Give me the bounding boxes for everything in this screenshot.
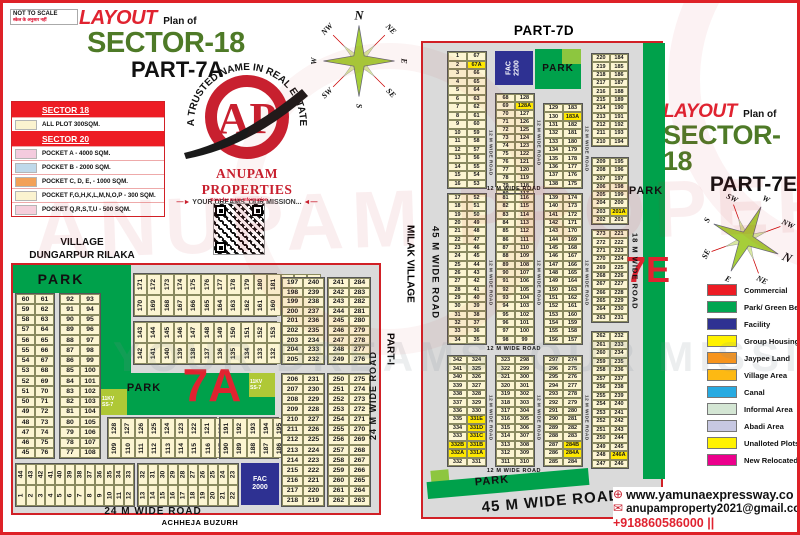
- block-263-273: 2732212722222712232702242692252682262672…: [591, 229, 629, 323]
- plot-200: 200: [610, 199, 628, 207]
- plot-91: 91: [496, 277, 515, 285]
- plot-122: 122: [188, 418, 201, 438]
- plot-128: 128: [515, 94, 534, 102]
- plot-29: 29: [168, 464, 178, 485]
- plot-209: 209: [282, 404, 303, 414]
- plot-26: 26: [448, 269, 467, 277]
- plot-335: 335: [448, 415, 467, 423]
- plot-121: 121: [201, 418, 214, 438]
- map-part-7a: 11KV SS-711KV SS-7FAC 200060615962586357…: [11, 263, 381, 515]
- plot-207: 207: [282, 384, 303, 394]
- plot-74: 74: [496, 142, 515, 150]
- plot-75: 75: [35, 438, 54, 448]
- plot-219: 219: [303, 496, 324, 506]
- plot-76: 76: [496, 158, 515, 166]
- plot-74: 74: [35, 427, 54, 437]
- plot-155: 155: [544, 327, 563, 335]
- legend-row: Park/ Green Belt: [707, 301, 800, 313]
- legend-swatch: [15, 163, 37, 173]
- plot-167: 167: [563, 252, 582, 260]
- legend-row: POCKET A - 4000 SQM.: [12, 146, 164, 160]
- plot-38: 38: [75, 464, 85, 485]
- plot-263: 263: [349, 496, 370, 506]
- plot-112: 112: [515, 227, 534, 235]
- compass-star-icon: [697, 190, 795, 288]
- map-label: 12 M WIDE ROAD: [581, 373, 591, 463]
- plot-89: 89: [60, 325, 80, 335]
- plot-153: 153: [267, 322, 280, 343]
- plot-109: 109: [108, 438, 121, 458]
- plot-110: 110: [121, 438, 134, 458]
- map-label: 12 M WIDE ROAD: [533, 103, 543, 183]
- plot-152: 152: [544, 302, 563, 310]
- plot-22: 22: [228, 485, 238, 506]
- website-url[interactable]: www.yamunaexpressway.co: [626, 488, 793, 502]
- plot-329: 329: [467, 398, 486, 406]
- plot-84: 84: [496, 219, 515, 227]
- plot-206: 206: [592, 183, 610, 191]
- plot-204: 204: [282, 345, 303, 355]
- plot-124: 124: [161, 418, 174, 438]
- plot-124: 124: [515, 134, 534, 142]
- plot-64: 64: [467, 86, 486, 95]
- plot-304: 304: [515, 407, 534, 415]
- plot-194: 194: [610, 138, 628, 146]
- plot-101: 101: [80, 376, 100, 386]
- plot-160: 160: [563, 311, 582, 319]
- plot-269: 269: [592, 263, 610, 271]
- plot-23: 23: [228, 464, 238, 485]
- plot-93: 93: [80, 294, 100, 304]
- plot-278: 278: [563, 390, 582, 398]
- plot-65: 65: [467, 78, 486, 87]
- legend-row: Canal: [707, 386, 800, 398]
- plot-56: 56: [467, 154, 486, 163]
- plot-4: 4: [448, 78, 467, 87]
- plot-66: 66: [467, 69, 486, 78]
- plot-188: 188: [610, 87, 628, 95]
- plot-94: 94: [80, 304, 100, 314]
- plot-328: 328: [467, 390, 486, 398]
- plot-235: 235: [610, 358, 628, 367]
- map-label: PARK: [25, 267, 97, 291]
- plot-14: 14: [148, 485, 158, 506]
- plot-125: 125: [148, 418, 161, 438]
- plot-52: 52: [16, 376, 35, 386]
- plot-285: 285: [544, 458, 563, 466]
- plot-197: 197: [610, 175, 628, 183]
- plot-14: 14: [448, 163, 467, 172]
- plot-181: 181: [267, 274, 280, 295]
- legend-swatch: [707, 386, 737, 398]
- email-line: ✉ anupamproperty2021@gmail.com: [613, 502, 800, 516]
- legend-label: POCKET C, D, E, - 1000 SQM.: [42, 178, 128, 185]
- plot-54: 54: [467, 171, 486, 180]
- plot-32: 32: [138, 464, 148, 485]
- plot-174: 174: [563, 194, 582, 202]
- plot-202: 202: [592, 216, 610, 224]
- plot-76: 76: [35, 448, 54, 458]
- plot-70: 70: [496, 110, 515, 118]
- strip-13-22: 3231302928272625242313141516171819202122: [137, 463, 239, 507]
- map-label: 12 M WIDE ROAD: [447, 467, 581, 475]
- plot-288: 288: [544, 432, 563, 440]
- plot-78: 78: [60, 438, 80, 448]
- plot-332A: 332A: [448, 449, 467, 457]
- plot-114: 114: [175, 438, 188, 458]
- legend-label: Abadi Area: [744, 422, 784, 431]
- plot-92: 92: [496, 286, 515, 294]
- plot-116: 116: [515, 194, 534, 202]
- plot-191: 191: [220, 418, 233, 438]
- plot-217: 217: [592, 79, 610, 87]
- block-77-108: 9293919490958996889787988699851008410183…: [59, 293, 101, 459]
- plot-156: 156: [544, 336, 563, 344]
- compass-label-N: N: [780, 249, 795, 266]
- plot-23: 23: [448, 244, 467, 252]
- plot-258: 258: [328, 455, 349, 465]
- plot-97: 97: [496, 327, 515, 335]
- plot-205: 205: [282, 354, 303, 364]
- plot-218: 218: [592, 71, 610, 79]
- plot-142: 142: [134, 343, 147, 364]
- plot-337: 337: [448, 398, 467, 406]
- plot-2: 2: [26, 485, 36, 506]
- plot-147: 147: [544, 261, 563, 269]
- block-332-342: 3423243413253403263393273383283373293363…: [447, 355, 487, 467]
- plot-101: 101: [515, 319, 534, 327]
- plot-18: 18: [188, 485, 198, 506]
- block-285-297: 2972742962752952762942772932782922792912…: [543, 355, 583, 467]
- plot-68: 68: [496, 94, 515, 102]
- plot-160: 160: [267, 295, 280, 316]
- plot-313: 313: [496, 441, 515, 449]
- plot-87: 87: [496, 244, 515, 252]
- plot-295: 295: [544, 373, 563, 381]
- plot-89: 89: [496, 261, 515, 269]
- plot-90: 90: [496, 269, 515, 277]
- plot-151: 151: [241, 322, 254, 343]
- plot-142: 142: [544, 219, 563, 227]
- plot-103: 103: [515, 302, 534, 310]
- plot-251: 251: [328, 384, 349, 394]
- plot-259: 259: [592, 358, 610, 367]
- plot-67: 67: [35, 356, 54, 366]
- plot-103: 103: [80, 397, 100, 407]
- plot-332B: 332B: [448, 441, 467, 449]
- plot-90: 90: [60, 315, 80, 325]
- plot-33: 33: [448, 327, 467, 335]
- plot-127: 127: [121, 418, 134, 438]
- plot-208: 208: [592, 166, 610, 174]
- map-label: 12 M WIDE ROAD: [447, 185, 581, 193]
- plot-316: 316: [496, 415, 515, 423]
- plot-250: 250: [592, 434, 610, 443]
- plot-91: 91: [60, 304, 80, 314]
- plot-80: 80: [60, 417, 80, 427]
- plot-185: 185: [610, 62, 628, 70]
- layout-poster: ANUPAM PROPERTIES YOUR DREAMS, OUR MISSI…: [0, 0, 800, 535]
- plot-174: 174: [174, 274, 187, 295]
- plot-173: 173: [161, 274, 174, 295]
- plot-20: 20: [208, 485, 218, 506]
- plot-256: 256: [328, 435, 349, 445]
- plot-98: 98: [496, 336, 515, 344]
- plot-330: 330: [467, 407, 486, 415]
- title-right: LAYOUT Plan of SECTOR-18 PART-7E: [663, 101, 799, 196]
- plot-323: 323: [496, 356, 515, 364]
- legend-row: Jaypee Land: [707, 352, 800, 364]
- plot-193: 193: [247, 418, 260, 438]
- plot-255: 255: [592, 392, 610, 401]
- plot-312: 312: [496, 449, 515, 457]
- plot-30: 30: [158, 464, 168, 485]
- plot-264: 264: [592, 305, 610, 313]
- plot-3: 3: [36, 485, 46, 506]
- plot-67A: 67A: [467, 61, 486, 70]
- plot-147: 147: [187, 322, 200, 343]
- plot-11: 11: [114, 485, 124, 506]
- plot-171: 171: [134, 274, 147, 295]
- plot-176: 176: [201, 274, 214, 295]
- legend-swatch: [707, 335, 737, 347]
- plot-324: 324: [467, 356, 486, 364]
- plot-66: 66: [35, 345, 54, 355]
- plot-244: 244: [610, 434, 628, 443]
- plot-19: 19: [448, 211, 467, 219]
- plot-198: 198: [282, 288, 303, 298]
- map-label: 24 M WIDE ROAD: [63, 505, 243, 517]
- plot-167: 167: [174, 295, 187, 316]
- compass-label-W: W: [760, 194, 770, 205]
- compass-label-E: E: [724, 274, 733, 284]
- plot-17: 17: [178, 485, 188, 506]
- plot-331B: 331B: [467, 441, 486, 449]
- plot-20: 20: [448, 219, 467, 227]
- plot-293: 293: [544, 390, 563, 398]
- plot-284A: 284A: [563, 449, 582, 457]
- not-to-scale-box: NOT TO SCALE स्केल के अनुसार नहीं: [10, 9, 78, 25]
- legend-label: Commercial: [744, 286, 787, 295]
- legend-label: Jaypee Land: [744, 354, 790, 363]
- plot-283: 283: [349, 288, 370, 298]
- plot-34: 34: [114, 464, 124, 485]
- plot-106: 106: [80, 427, 100, 437]
- plot-177: 177: [214, 274, 227, 295]
- plot-209: 209: [592, 158, 610, 166]
- legend-label: Informal Area: [744, 405, 793, 414]
- block-139-174: 1391741401731411721421711431701441691451…: [543, 193, 583, 345]
- legend-row: Unalloted Plots: [707, 437, 800, 449]
- part-7d-title: PART-7D: [469, 23, 619, 38]
- plot-196: 196: [610, 166, 628, 174]
- plot-159: 159: [563, 319, 582, 327]
- strip-185-196: 191192193194195196190189188187186185: [219, 417, 279, 459]
- plot-308: 308: [515, 441, 534, 449]
- plot-231: 231: [610, 314, 628, 322]
- plot-13: 13: [448, 154, 467, 163]
- map-label: 12 M WIDE ROAD: [485, 373, 495, 463]
- plot-67: 67: [467, 52, 486, 61]
- plot-332: 332: [448, 458, 467, 466]
- plot-249: 249: [592, 443, 610, 452]
- plot-254: 254: [328, 415, 349, 425]
- plot-246: 246: [328, 326, 349, 336]
- plot-150: 150: [227, 322, 240, 343]
- plot-4: 4: [45, 485, 55, 506]
- plot-201: 201: [610, 216, 628, 224]
- legend-swatch: [707, 301, 737, 313]
- legend-label: Group Housing: [744, 337, 799, 346]
- plot-84: 84: [60, 376, 80, 386]
- plot-169: 169: [147, 295, 160, 316]
- plot-236: 236: [610, 366, 628, 375]
- plot-300: 300: [515, 373, 534, 381]
- plot-93: 93: [496, 294, 515, 302]
- compass-label-E: E: [400, 58, 409, 63]
- plot-58: 58: [16, 315, 35, 325]
- plot-216: 216: [282, 476, 303, 486]
- plot-334: 334: [448, 424, 467, 432]
- plot-99: 99: [80, 356, 100, 366]
- plot-115: 115: [188, 438, 201, 458]
- plot-315: 315: [496, 424, 515, 432]
- plot-48: 48: [16, 417, 35, 427]
- company-logo: A TRUSTED NAME IN REAL ESTATE AP ANUPAM …: [169, 53, 325, 206]
- plot-169: 169: [563, 236, 582, 244]
- plot-85: 85: [60, 366, 80, 376]
- company-name: ANUPAM PROPERTIES: [169, 166, 325, 198]
- plot-184: 184: [610, 54, 628, 62]
- map-label: 12 M WIDE ROAD: [485, 123, 495, 183]
- village-line1: VILLAGE: [11, 237, 153, 250]
- plot-281: 281: [563, 415, 582, 423]
- plot-220: 220: [303, 486, 324, 496]
- legend-row: New Relocated Plots: [707, 454, 800, 466]
- plot-55: 55: [16, 345, 35, 355]
- plot-71: 71: [35, 397, 54, 407]
- plot-338: 338: [448, 390, 467, 398]
- plot-45: 45: [467, 252, 486, 260]
- qr-block: Scan for more Information: [209, 197, 269, 256]
- plot-37: 37: [467, 319, 486, 327]
- plot-171: 171: [563, 219, 582, 227]
- plot-64: 64: [35, 325, 54, 335]
- plot-188: 188: [247, 438, 260, 458]
- qr-code: [213, 203, 265, 255]
- legend-left: SECTOR 18ALL PLOT 300SQM.SECTOR 20POCKET…: [11, 101, 165, 217]
- plot-245: 245: [610, 443, 628, 452]
- village-label: VILLAGE DUNGARPUR RILAKA: [11, 237, 153, 262]
- plot-240: 240: [303, 278, 324, 288]
- legend-section-header: SECTOR 20: [12, 131, 164, 146]
- plot-200: 200: [282, 307, 303, 317]
- block-81-116: 8111682115831148411385112861118711088109…: [495, 193, 535, 345]
- plot-98: 98: [80, 345, 100, 355]
- legend-swatch: [707, 454, 737, 466]
- plot-12: 12: [448, 146, 467, 155]
- plot-340: 340: [448, 373, 467, 381]
- plot-130: 130: [544, 112, 563, 120]
- email-address[interactable]: anupamproperty2021@gmail.com: [626, 503, 800, 516]
- plot-85: 85: [496, 227, 515, 235]
- plot-45: 45: [16, 448, 35, 458]
- legend-label: POCKET F,G,H,K,L,M,N,O,P - 300 SQM.: [42, 192, 156, 199]
- plot-214: 214: [282, 455, 303, 465]
- plot-257: 257: [328, 445, 349, 455]
- plot-289: 289: [544, 424, 563, 432]
- plot-109: 109: [515, 252, 534, 260]
- plot-310: 310: [515, 458, 534, 466]
- plot-44: 44: [16, 464, 26, 485]
- plot-39: 39: [467, 302, 486, 310]
- plot-131: 131: [544, 121, 563, 129]
- plot-331E: 331E: [467, 415, 486, 423]
- plot-241: 241: [610, 409, 628, 418]
- plot-63: 63: [467, 95, 486, 104]
- plot-194: 194: [260, 418, 273, 438]
- plot-108: 108: [515, 261, 534, 269]
- plot-203: 203: [282, 335, 303, 345]
- map-label: 12 M WIDE ROAD: [581, 109, 591, 189]
- plot-25: 25: [208, 464, 218, 485]
- plot-216: 216: [592, 87, 610, 95]
- plot-212: 212: [282, 435, 303, 445]
- plot-31: 31: [148, 464, 158, 485]
- legend-swatch: [15, 149, 37, 159]
- plot-213: 213: [282, 445, 303, 455]
- plot-294: 294: [544, 381, 563, 389]
- plot-165: 165: [201, 295, 214, 316]
- plot-157: 157: [563, 336, 582, 344]
- plot-221: 221: [610, 230, 628, 238]
- map-label: 45 M WIDE ROAD: [425, 193, 445, 353]
- plot-104: 104: [80, 407, 100, 417]
- plot-136: 136: [544, 163, 563, 171]
- plot-322: 322: [496, 364, 515, 372]
- block-17-52: 1752185119502049214822472346244525442643…: [447, 193, 487, 345]
- plot-262: 262: [592, 332, 610, 341]
- plot-233: 233: [303, 345, 324, 355]
- plot-211: 211: [592, 129, 610, 137]
- plot-149: 149: [214, 322, 227, 343]
- plot-53: 53: [16, 366, 35, 376]
- plot-325: 325: [467, 364, 486, 372]
- legend-row: POCKET Q,R,S,T,U - 500 SQM.: [12, 202, 164, 216]
- plot-204: 204: [592, 199, 610, 207]
- plot-8: 8: [85, 485, 95, 506]
- plot-327: 327: [467, 381, 486, 389]
- qr-finder-icon: [252, 205, 263, 216]
- plot-113: 113: [161, 438, 174, 458]
- title-plan-of: Plan of: [163, 16, 196, 27]
- plot-257: 257: [592, 375, 610, 384]
- plot-189: 189: [610, 96, 628, 104]
- plot-232: 232: [610, 332, 628, 341]
- plot-215: 215: [592, 96, 610, 104]
- plot-326: 326: [467, 373, 486, 381]
- plot-47: 47: [16, 427, 35, 437]
- plot-8: 8: [448, 112, 467, 121]
- qr-finder-icon: [215, 205, 226, 216]
- plot-238: 238: [303, 297, 324, 307]
- block-311-323: 3232983222993213003203013193023183033173…: [495, 355, 535, 467]
- plot-263: 263: [592, 314, 610, 322]
- plot-230: 230: [610, 305, 628, 313]
- plot-120: 120: [515, 166, 534, 174]
- plot-21: 21: [218, 485, 228, 506]
- plot-311: 311: [496, 458, 515, 466]
